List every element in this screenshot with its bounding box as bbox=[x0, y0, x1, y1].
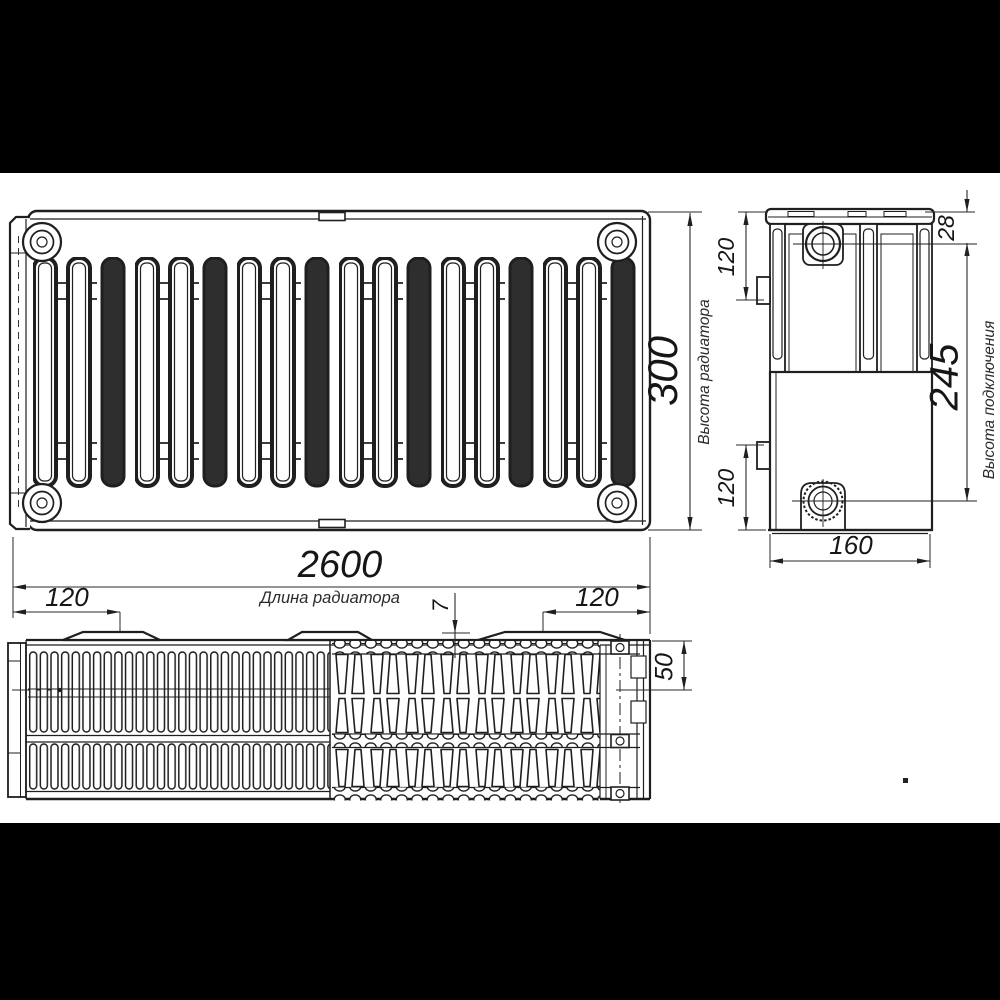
corner-plug-top-right bbox=[598, 223, 636, 261]
dim-height-label: Высота радиатора bbox=[696, 299, 713, 445]
plan-tab-1 bbox=[63, 632, 160, 640]
corner-plug-bottom-right bbox=[598, 484, 636, 522]
dim-side-port-bottom-value: 120 bbox=[713, 469, 739, 508]
front-view bbox=[10, 211, 650, 530]
upper-connection-port bbox=[803, 221, 843, 269]
letterbox-bottom bbox=[0, 823, 1000, 1000]
plan-tab-3 bbox=[478, 632, 625, 640]
plan-tab-2 bbox=[288, 632, 372, 640]
front-left-bracket bbox=[10, 217, 30, 529]
letterbox-top bbox=[0, 0, 1000, 173]
dim-height-value: 300 bbox=[639, 335, 686, 406]
dim-axis-offset-value: 50 bbox=[651, 653, 679, 681]
radiator-technical-drawing: 300 Высота радиатора 2600 Длина радиатор… bbox=[0, 0, 1000, 1000]
lower-connection-port bbox=[801, 479, 845, 530]
plan-left-cap bbox=[8, 643, 26, 797]
dim-connection-height-value: 245 bbox=[923, 343, 967, 411]
dim-bracket-left-value: 120 bbox=[45, 582, 89, 612]
bottom-clip bbox=[319, 520, 345, 528]
dim-top-offset-value: 28 bbox=[933, 215, 959, 242]
dim-grille-step-value: 7 bbox=[428, 599, 453, 612]
side-tab-lower bbox=[757, 442, 770, 469]
drawing-page: 300 Высота радиатора 2600 Длина радиатор… bbox=[0, 0, 1000, 1000]
dim-connection-height-label: Высота подключения bbox=[981, 321, 998, 480]
dim-side-port-top-value: 120 bbox=[713, 238, 739, 277]
side-panel bbox=[770, 372, 932, 530]
dim-length-label: Длина радиатора bbox=[258, 589, 400, 607]
dim-bracket-right-value: 120 bbox=[575, 582, 619, 612]
plan-view bbox=[8, 632, 650, 803]
dim-depth-value: 160 bbox=[829, 530, 873, 560]
front-fin-grille bbox=[33, 257, 645, 488]
dim-length-value: 2600 bbox=[297, 544, 383, 586]
plan-convector-fins bbox=[330, 640, 640, 801]
image-speck bbox=[903, 778, 908, 783]
top-clip bbox=[319, 213, 345, 221]
corner-plug-top-left bbox=[23, 223, 61, 261]
corner-plug-bottom-left bbox=[23, 484, 61, 522]
plan-grille bbox=[26, 651, 330, 792]
